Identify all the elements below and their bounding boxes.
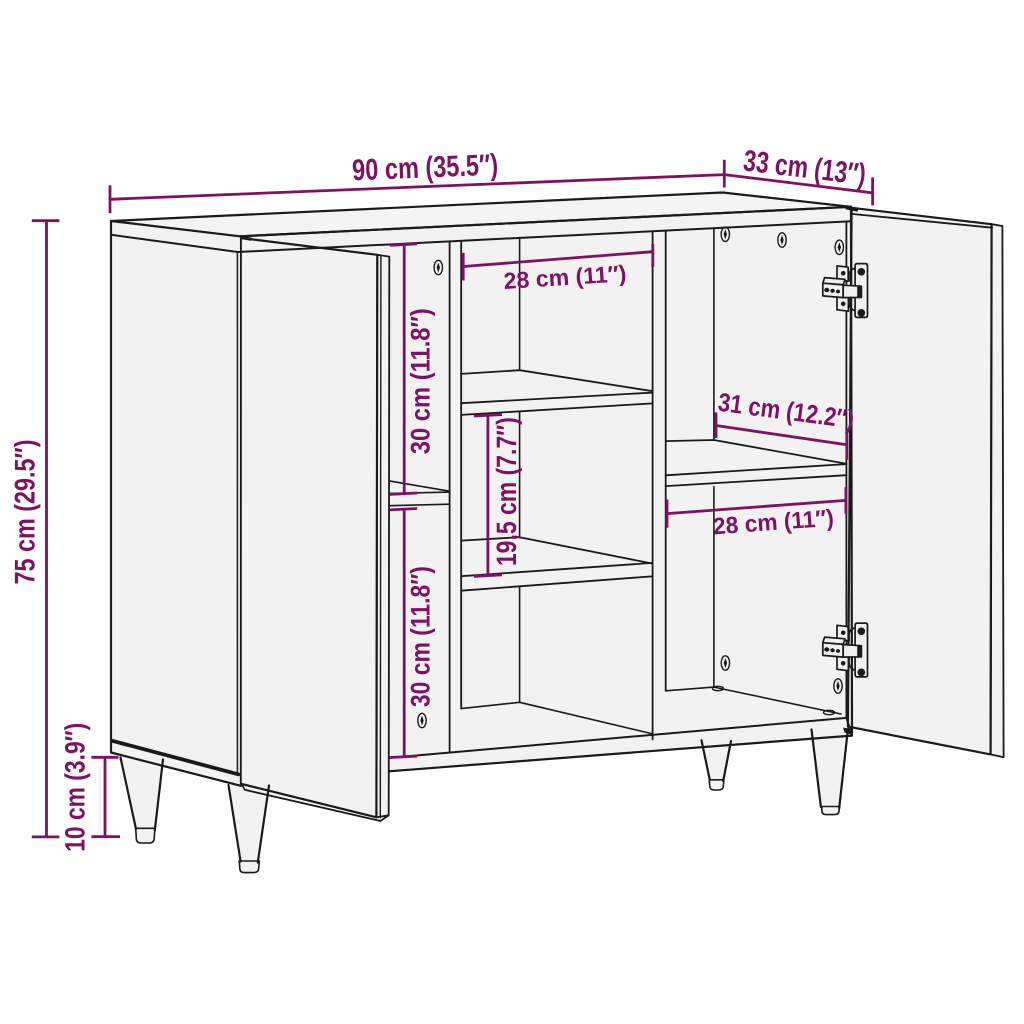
svg-text:30 cm (11.8″): 30 cm (11.8″) xyxy=(406,566,436,707)
svg-text:75 cm (29.5″): 75 cm (29.5″) xyxy=(10,440,42,585)
svg-text:30 cm (11.8″): 30 cm (11.8″) xyxy=(406,308,436,454)
svg-text:10 cm (3.9″): 10 cm (3.9″) xyxy=(60,723,91,852)
svg-text:90 cm (35.5″): 90 cm (35.5″) xyxy=(352,149,499,188)
svg-text:19,5 cm (7.7″): 19,5 cm (7.7″) xyxy=(491,417,522,566)
